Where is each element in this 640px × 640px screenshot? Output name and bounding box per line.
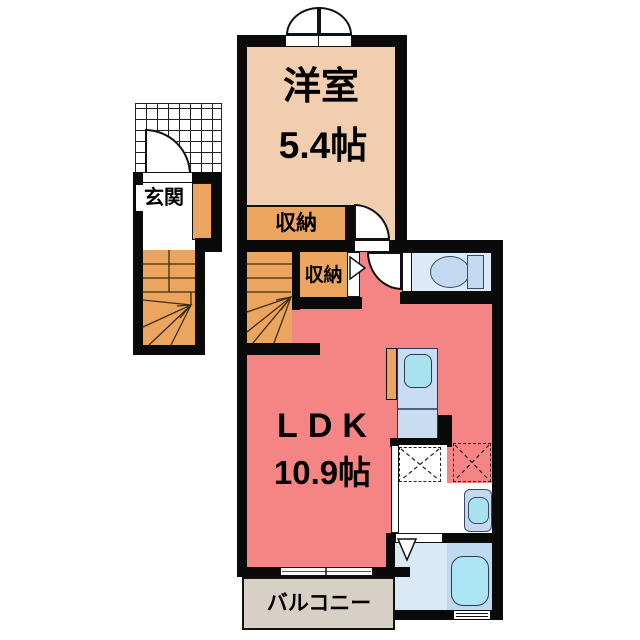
ldk-label: LDK (252, 404, 392, 448)
fridge-space-icon (453, 443, 491, 482)
wall (443, 533, 492, 543)
bathtub-icon (451, 556, 489, 606)
entrance-stairs (143, 250, 195, 345)
toilet-icon (430, 256, 470, 288)
ldk-size: 10.9帖 (245, 450, 400, 494)
wall-left (237, 35, 247, 577)
door-threshold (354, 240, 390, 252)
wall (195, 238, 222, 252)
toilet-door-threshold (402, 252, 412, 292)
kitchen-cabinet (386, 348, 397, 400)
shoe-cabinet (192, 183, 212, 240)
floor-plan: 洋室 5.4帖 収納 収納 玄関 LDK 10.9帖 バルコニー (0, 0, 640, 640)
closet-upper-label: 収納 (247, 207, 345, 239)
closet-lower-label: 収納 (300, 255, 347, 295)
washer-space-icon (399, 447, 441, 482)
wall-right (492, 240, 503, 620)
wall (292, 297, 362, 309)
window-sill (285, 35, 352, 47)
wall (237, 343, 320, 355)
casement-window-icon (286, 7, 319, 35)
entrance-label: 玄関 (136, 185, 192, 211)
wall (133, 345, 205, 355)
washbasin-bowl-icon (468, 497, 489, 524)
wall-right-upper (395, 35, 407, 252)
wall (400, 292, 503, 304)
wall (390, 240, 503, 252)
kitchen-sink-icon (404, 354, 432, 388)
closet-folding-door (347, 252, 360, 297)
vent-louver-icon (454, 611, 490, 619)
casement-window-icon (319, 7, 352, 35)
wall (237, 240, 354, 252)
entrance-threshold (140, 172, 194, 183)
main-stairs (247, 252, 292, 343)
western-room-label: 洋室 (255, 64, 387, 110)
balcony-label: バルコニー (244, 584, 394, 622)
bath-door-threshold (395, 533, 443, 543)
western-room-size: 5.4帖 (250, 120, 396, 170)
toilet-tank-icon (467, 255, 484, 289)
balcony-sliding-window (280, 567, 373, 576)
wall (195, 252, 205, 355)
wall (438, 415, 452, 447)
